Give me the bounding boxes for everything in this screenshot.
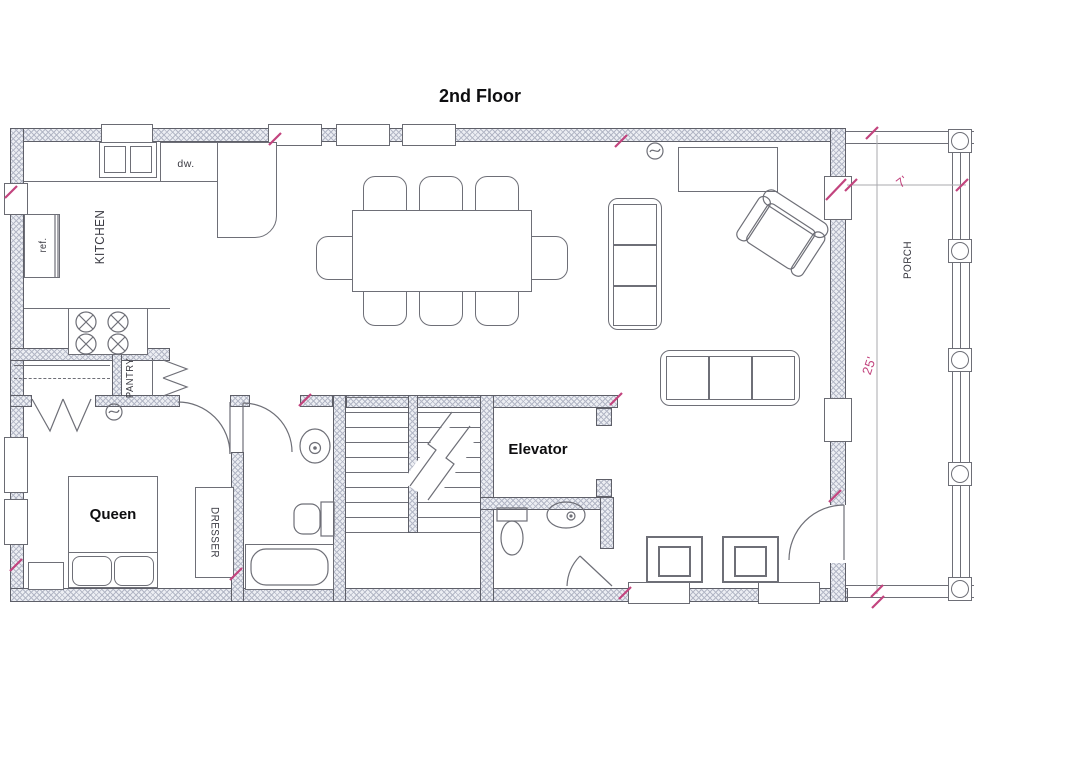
bedroom-door bbox=[178, 402, 230, 454]
armchair bbox=[734, 186, 832, 279]
fixture-label-dresser: DRESSER bbox=[208, 492, 221, 573]
closet-double-doors bbox=[32, 399, 91, 431]
smoke-detector-symbol bbox=[106, 404, 122, 420]
room-label-queen-bed: Queen bbox=[63, 506, 163, 523]
stove-burners bbox=[76, 312, 128, 354]
stair-break bbox=[402, 412, 476, 502]
room-label-elevator: Elevator bbox=[478, 441, 598, 458]
powder-toilet bbox=[497, 508, 527, 555]
plan-detail-overlay bbox=[0, 0, 1080, 760]
dimension-ticks bbox=[5, 127, 968, 608]
pantry-bifold-doors bbox=[163, 360, 187, 396]
room-label-porch: PORCH bbox=[902, 224, 916, 296]
page-title: 2nd Floor bbox=[370, 86, 590, 107]
powder-sink bbox=[547, 502, 585, 528]
fixture-label-dishwasher: dw. bbox=[166, 158, 206, 170]
refrigerator-door-lines bbox=[55, 215, 58, 277]
bathroom-door bbox=[243, 403, 292, 452]
floor-plan: 2nd Floor bbox=[0, 0, 1080, 760]
room-label-pantry: PANTRY bbox=[124, 342, 138, 414]
bath-toilet bbox=[294, 502, 334, 536]
fixture-label-refrigerator: ref. bbox=[38, 227, 50, 263]
smoke-detector-symbol bbox=[647, 143, 663, 159]
room-label-kitchen: KITCHEN bbox=[92, 201, 106, 273]
bath-sink bbox=[300, 429, 330, 463]
powder-door bbox=[567, 556, 612, 586]
bathtub-basin bbox=[251, 549, 328, 585]
porch-door bbox=[789, 505, 844, 560]
